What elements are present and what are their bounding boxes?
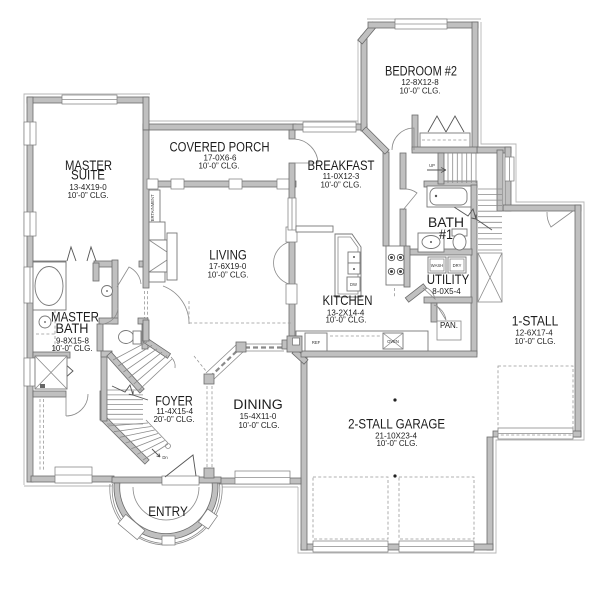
svg-text:UTILITY: UTILITY: [427, 272, 470, 287]
svg-text:WASH: WASH: [431, 263, 443, 268]
svg-text:10'-0” CLG.: 10'-0” CLG.: [320, 180, 361, 189]
svg-text:UP: UP: [429, 163, 435, 168]
svg-text:10'-0” CLG.: 10'-0” CLG.: [198, 162, 239, 171]
svg-text:10'-0” CLG.: 10'-0” CLG.: [67, 191, 108, 200]
svg-text:10'-0” CLG.: 10'-0” CLG.: [238, 421, 279, 430]
svg-text:DINING: DINING: [233, 397, 283, 412]
svg-text:SUITE: SUITE: [71, 168, 105, 183]
svg-text:10'-0” CLG.: 10'-0” CLG.: [325, 316, 366, 325]
svg-text:20'-0” CLG.: 20'-0” CLG.: [153, 415, 194, 424]
svg-text:12-6X17-4: 12-6X17-4: [515, 328, 553, 337]
svg-text:OVEN: OVEN: [387, 339, 399, 344]
svg-text:#1: #1: [439, 227, 453, 242]
svg-text:REF: REF: [312, 340, 321, 345]
svg-text:ENTRY: ENTRY: [148, 504, 188, 519]
svg-text:BREAKFAST: BREAKFAST: [308, 158, 375, 173]
svg-text:15-4X11-0: 15-4X11-0: [240, 412, 277, 421]
svg-text:10'-0” CLG.: 10'-0” CLG.: [51, 344, 92, 353]
svg-text:DW: DW: [350, 282, 357, 287]
svg-text:10'-0” CLG.: 10'-0” CLG.: [399, 87, 440, 96]
svg-text:DRY: DRY: [453, 263, 462, 268]
svg-text:BATH: BATH: [56, 321, 89, 336]
svg-text:8-0X5-4: 8-0X5-4: [432, 287, 461, 296]
svg-text:2-STALL GARAGE: 2-STALL GARAGE: [348, 416, 445, 431]
svg-text:1-STALL: 1-STALL: [512, 314, 559, 329]
svg-text:PAN.: PAN.: [440, 321, 458, 330]
svg-text:LIVING: LIVING: [209, 248, 247, 263]
svg-text:BEDROOM #2: BEDROOM #2: [385, 64, 457, 79]
svg-text:10'-0” CLG.: 10'-0” CLG.: [514, 337, 555, 346]
svg-text:10'-0” CLG.: 10'-0” CLG.: [207, 271, 248, 280]
svg-text:COVERED PORCH: COVERED PORCH: [170, 140, 270, 155]
svg-text:Dn: Dn: [162, 455, 168, 460]
svg-text:10'-0” CLG.: 10'-0” CLG.: [376, 439, 417, 448]
svg-text:KITCHEN: KITCHEN: [323, 293, 373, 308]
svg-text:17-6X19-0: 17-6X19-0: [209, 262, 247, 271]
